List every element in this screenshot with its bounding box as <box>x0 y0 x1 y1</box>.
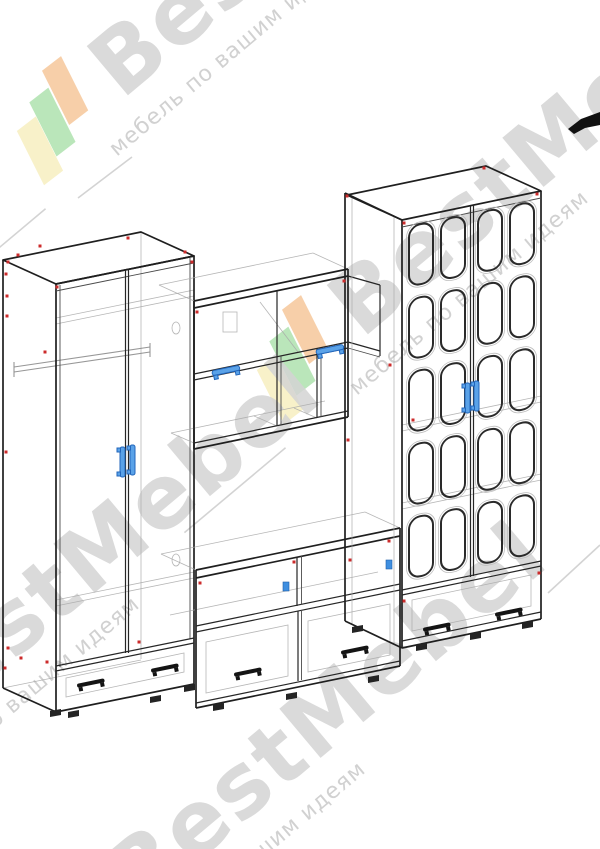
assembly-dot <box>293 561 296 564</box>
clip-mark <box>283 582 289 591</box>
assembly-dot <box>127 237 130 240</box>
wall-unit-diagram: BestMebel мебель по вашим идеям BestMebe… <box>0 0 600 849</box>
watermark-brand-text: BestMebel <box>69 0 548 117</box>
assembly-dot <box>536 193 539 196</box>
assembly-dot <box>403 600 406 603</box>
furniture-foot <box>68 710 79 718</box>
assembly-dot <box>403 222 406 225</box>
assembly-dot <box>6 295 9 298</box>
assembly-dot <box>4 667 7 670</box>
assembly-dot <box>184 251 187 254</box>
assembly-dot <box>199 582 202 585</box>
assembly-dot <box>44 351 47 354</box>
assembly-dot <box>5 273 8 276</box>
door-handle <box>471 381 479 411</box>
door-handle <box>117 447 125 477</box>
assembly-dot <box>412 419 415 422</box>
assembly-dot <box>5 451 8 454</box>
assembly-dot <box>46 661 49 664</box>
assembly-dot <box>7 261 10 264</box>
assembly-dot <box>17 254 20 257</box>
assembly-dot <box>39 245 42 248</box>
assembly-dot <box>6 315 9 318</box>
clip-mark <box>386 560 392 569</box>
assembly-dot <box>343 280 346 283</box>
assembly-dot <box>388 540 391 543</box>
assembly-dot <box>346 195 349 198</box>
assembly-dot <box>20 657 23 660</box>
door-handle <box>462 383 470 413</box>
assembly-dot <box>7 647 10 650</box>
drawer-handle <box>151 663 180 676</box>
assembly-dot <box>349 559 352 562</box>
furniture-drawing-page: BestMebel мебель по вашим идеям BestMebe… <box>0 0 600 849</box>
furniture-foot <box>150 695 161 703</box>
assembly-dot <box>191 261 194 264</box>
watermark-layer: BestMebel мебель по вашим идеям BestMebe… <box>0 0 600 849</box>
assembly-dot <box>196 311 199 314</box>
watermark-rule-line <box>0 209 46 294</box>
clothes-rail <box>14 343 150 377</box>
assembly-dot <box>483 167 486 170</box>
watermark-rule-line <box>78 157 132 198</box>
assembly-dot <box>538 572 541 575</box>
drawer-handle <box>234 667 263 680</box>
assembly-dot <box>389 364 392 367</box>
assembly-dot <box>347 439 350 442</box>
assembly-dot <box>138 641 141 644</box>
assembly-dot <box>56 286 59 289</box>
